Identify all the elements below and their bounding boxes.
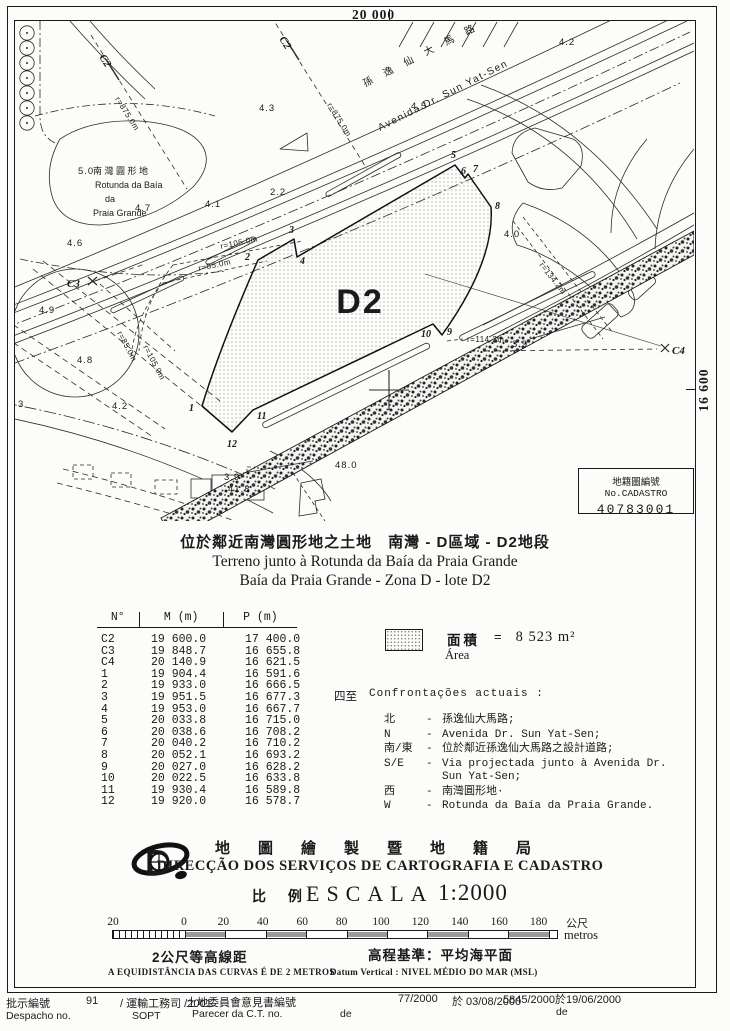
confrontacao-cell: Via projectada junto à Avenida Dr. Sun Y… [442, 758, 680, 785]
grid-tick-top [389, 9, 390, 21]
spot-height: 4.8 [77, 355, 93, 366]
datum-note-pt: Datum Vertical : NIVEL MÉDIO DO MAR (MSL… [330, 967, 538, 977]
confrontacao-cell: S/E [384, 758, 426, 785]
scalebar-tick-label: 20 [98, 916, 128, 928]
parcel-d2-label: D2 [336, 283, 383, 321]
scalebar-unit-pt: metros [564, 928, 598, 943]
scalebar [112, 930, 558, 939]
table-cell: 19 920.0 [143, 796, 235, 808]
spot-height: 4.7 [135, 203, 151, 214]
spot-height: 4.1 [205, 199, 221, 210]
spot-height: 4.3 [259, 103, 275, 114]
confrontacao-cell: 位於鄰近孫逸仙大馬路之設計道路; [442, 743, 680, 757]
contour-note-pt: A EQUIDISTÂNCIA DAS CURVAS É DE 2 METROS [108, 967, 335, 977]
vertex-3: 3 [288, 225, 294, 236]
spot-height: 41.8 [228, 484, 251, 495]
vertex-5: 5 [451, 150, 456, 161]
control-point-c2b: C2 [276, 34, 293, 52]
table-row: 319 951.516 677.3 [97, 692, 319, 704]
radius-114: r=114.2m [467, 335, 504, 344]
rotunda-name-pt2: da [105, 194, 115, 204]
cadastro-label: 地籍圖編號 No.CADASTRO [579, 474, 693, 499]
table-cell: 8 [97, 750, 143, 762]
rotunda-name-pt1: Rotunda da Baía [95, 180, 163, 190]
vertex-10: 10 [421, 329, 431, 340]
table-cell: 5 [97, 715, 143, 727]
spot-height: 2.2 [270, 187, 286, 198]
confrontacao-row: 西-南灣圓形地· [384, 786, 680, 800]
table-cell: 20 022.5 [143, 773, 235, 785]
confrontacao-cell: 西 [384, 786, 426, 800]
confrontacao-cell: 孫逸仙大馬路; [442, 714, 680, 728]
despacho-number: 91 [86, 995, 98, 1007]
radius-105a: r=105.0m [220, 234, 259, 251]
datum-note-zh: 高程基準：平均海平面 [368, 944, 513, 964]
confrontacao-row: 南/東-位於鄰近孫逸仙大馬路之設計道路; [384, 743, 680, 757]
spot-height: 48.0 [335, 460, 358, 471]
vertex-12: 12 [227, 439, 237, 450]
table-cell: C2 [97, 634, 143, 646]
agency-name-zh: 地圖繪製暨地籍局 [215, 837, 595, 858]
cadastro-number: 40783001 [579, 502, 693, 517]
confrontacao-cell: 南/東 [384, 743, 426, 757]
spot-height: 3.9 [512, 339, 528, 350]
spot-height: 4.2 [112, 401, 128, 412]
table-cell: 16 693.2 [235, 750, 319, 762]
table-cell: 16 715.0 [235, 715, 319, 727]
tree-row-icon [20, 26, 34, 130]
plot-title-pt2: Baía da Praia Grande - Zona D - lote D2 [0, 572, 730, 590]
parecer-label-pt: Parecer da C.T. no. [192, 1008, 282, 1020]
confrontacao-cell: 南灣圓形地· [442, 786, 680, 800]
confrontacao-cell: - [426, 800, 442, 814]
coordinate-table-rows: C219 600.017 400.0C319 848.716 655.8C420… [97, 634, 319, 808]
table-cell: 19 951.5 [143, 692, 235, 704]
scalebar-tick-label: 20 [208, 916, 238, 928]
scale-label-pt: ESCALA [306, 881, 434, 907]
confrontacao-cell: - [426, 729, 442, 743]
spot-height: 4.6 [67, 238, 83, 249]
scalebar-tick-label: 80 [327, 916, 357, 928]
map-linework [15, 21, 694, 521]
confrontacoes-section: 四至 Confrontações actuais : 北-孫逸仙大馬路;N-Av… [334, 688, 680, 815]
scale-ratio-value: 1:2000 [438, 880, 508, 906]
spot-height: 4.5 [411, 101, 427, 112]
confrontacao-cell: - [426, 743, 442, 757]
table-row: 520 033.816 715.0 [97, 715, 319, 727]
scalebar-tick-label: 40 [248, 916, 278, 928]
confrontacao-row: N-Avenida Dr. Sun Yat-Sen; [384, 729, 680, 743]
table-cell: 12 [97, 796, 143, 808]
table-cell: 10 [97, 773, 143, 785]
reference-number: 5845/2000於19/06/2000 [503, 991, 621, 1007]
confrontacoes-prefix: 四至 [334, 688, 357, 704]
cadastral-plan-sheet: 20 000 16 600 [0, 0, 730, 1031]
parecer-de: de [340, 1008, 352, 1020]
scalebar-tick-label: 60 [287, 916, 317, 928]
radius-875a: r=875.0m [113, 95, 141, 132]
grid-coordinate-right: 16 600 [696, 364, 710, 416]
vertex-1: 1 [189, 403, 194, 414]
parecer-number: 77/2000 [398, 993, 438, 1005]
despacho-label-pt: Despacho no. [6, 1010, 71, 1022]
area-swatch-icon [385, 629, 423, 651]
confrontacao-row: S/E-Via projectada junto à Avenida Dr. S… [384, 758, 680, 785]
table-cell: 19 600.0 [143, 634, 235, 646]
spot-height: 4.9 [39, 305, 55, 316]
vertex-8: 8 [495, 201, 500, 212]
contour-note-zh: 2公尺等高線距 [152, 946, 248, 966]
confrontacao-row: W-Rotunda da Baía da Praia Grande. [384, 800, 680, 814]
map-canvas: D2 孫 逸 仙 大 馬 路 Avenida Dr. Sun Yat-Sen 南… [15, 21, 694, 521]
scale-label-zh: 比 例 [252, 886, 311, 906]
confrontacao-cell: W [384, 800, 426, 814]
scalebar-tick-label: 140 [445, 916, 475, 928]
table-cell: 20 033.8 [143, 715, 235, 727]
vertex-7: 7 [473, 164, 479, 175]
vertex-2: 2 [244, 252, 250, 263]
control-point-c3: C3 [67, 278, 80, 290]
despacho-label-zh: 批示編號 [6, 995, 50, 1011]
scalebar-tick-label: 180 [524, 916, 554, 928]
plot-title-pt1: Terreno junto à Rotunda da Baía da Praia… [0, 553, 730, 571]
radius-875b: r=875.0m [325, 101, 353, 138]
area-value: 8 523 m² [516, 629, 576, 646]
cadastro-number-box: 地籍圖編號 No.CADASTRO 40783001 [578, 468, 694, 514]
table-row: C219 600.017 400.0 [97, 634, 319, 646]
area-section: 面積 = 8 523 m² [385, 629, 575, 651]
table-row: 1020 022.516 633.8 [97, 773, 319, 785]
spot-height: 3.9 [224, 472, 240, 483]
control-point-c4: C4 [672, 345, 685, 357]
table-cell: 16 578.7 [235, 796, 319, 808]
vertex-9: 9 [447, 327, 452, 338]
confrontacao-cell: Rotunda da Baía da Praia Grande. [442, 800, 680, 814]
table-cell: 16 633.8 [235, 773, 319, 785]
scalebar-tick-label: 160 [484, 916, 514, 928]
table-row: 820 052.116 693.2 [97, 750, 319, 762]
scalebar-tick-label: 120 [405, 916, 435, 928]
confrontacoes-title: Confrontações actuais : [369, 688, 544, 704]
col-header-m: M (m) [139, 612, 223, 627]
confrontacoes-rows: 北-孫逸仙大馬路;N-Avenida Dr. Sun Yat-Sen;南/東-位… [384, 714, 680, 814]
table-cell: 20 052.1 [143, 750, 235, 762]
area-label-pt: Área [445, 648, 469, 663]
spot-height: 3 [18, 399, 24, 410]
reference-de: de [556, 1006, 568, 1018]
agency-name-pt: DIRECÇÃO DOS SERVIÇOS DE CARTOGRAFIA E C… [0, 858, 730, 875]
plot-title-zh: 位於鄰近南灣圓形地之土地 南灣 - D區域 - D2地段 [0, 531, 730, 552]
confrontacao-cell: - [426, 786, 442, 800]
confrontacao-cell: 北 [384, 714, 426, 728]
vertex-6: 6 [461, 166, 466, 177]
scalebar-tick-label: 0 [169, 916, 199, 928]
col-header-n: N° [97, 612, 139, 627]
rotunda-name-zh: 南 灣 圓 形 地 [93, 165, 148, 176]
col-header-p: P (m) [223, 612, 297, 627]
area-equals: = [494, 629, 502, 644]
confrontacao-cell: - [426, 714, 442, 728]
vertex-4: 4 [299, 256, 305, 267]
coordinate-table-header: N° M (m) P (m) [97, 612, 297, 628]
confrontacao-cell: N [384, 729, 426, 743]
table-cell: 3 [97, 692, 143, 704]
spot-height: 4.0 [504, 229, 520, 240]
confrontacao-cell: - [426, 758, 442, 785]
coordinate-table: N° M (m) P (m) C219 600.017 400.0C319 84… [97, 612, 319, 808]
spot-height: 4.2 [559, 37, 575, 48]
table-cell: 17 400.0 [235, 634, 319, 646]
confrontacao-cell: Avenida Dr. Sun Yat-Sen; [442, 729, 680, 743]
table-row: 1219 920.016 578.7 [97, 796, 319, 808]
area-label-zh: 面積 [447, 629, 480, 649]
scalebar-tick-label: 100 [366, 916, 396, 928]
table-cell: 16 677.3 [235, 692, 319, 704]
spot-height: 5.0 [78, 166, 94, 177]
vertex-11: 11 [257, 411, 266, 422]
despacho-sopt: SOPT [132, 1010, 161, 1022]
confrontacao-row: 北-孫逸仙大馬路; [384, 714, 680, 728]
